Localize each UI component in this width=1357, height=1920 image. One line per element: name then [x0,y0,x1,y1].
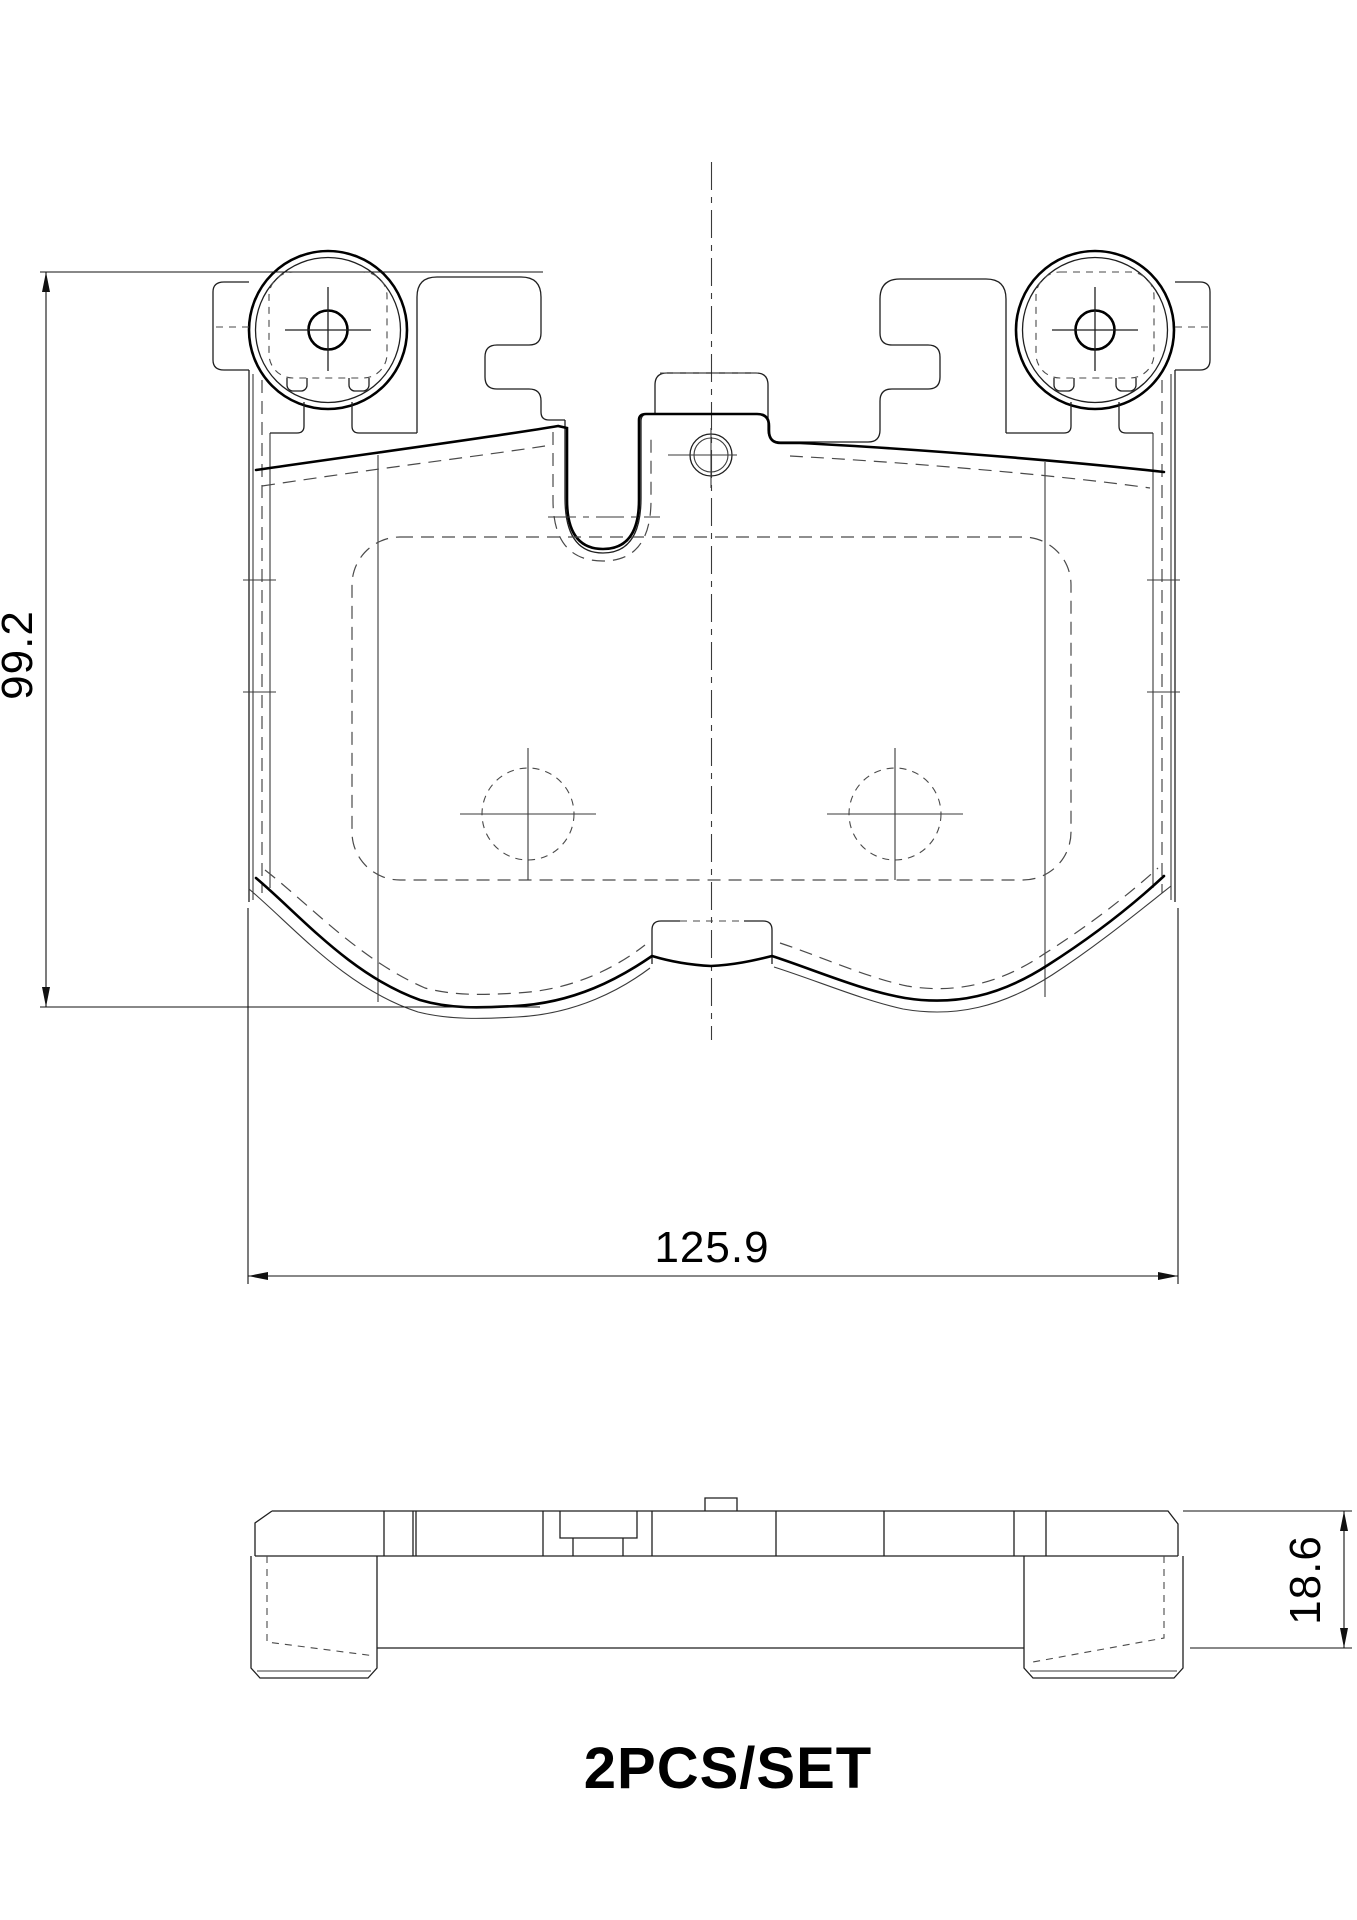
left-center-hole [460,748,596,880]
front-view [213,162,1210,1040]
dimension-thickness: 18.6 [1183,1511,1352,1648]
friction-material-outline [256,414,1164,1007]
thickness-dimension-label: 18.6 [1281,1535,1330,1625]
right-center-hole [827,748,963,880]
height-dimension-label: 99.2 [0,610,42,700]
right-ear-crosshair [1052,287,1138,371]
top-center-pin-hole [668,428,737,488]
dimension-height: 99.2 [0,272,543,1007]
side-view-top-tab [705,1498,737,1511]
left-friction-block [251,1556,377,1678]
right-friction-block [1024,1556,1183,1678]
width-dimension-label: 125.9 [654,1223,769,1272]
backing-plate-strip [255,1498,1178,1556]
side-view-center-notch [560,1511,637,1556]
brake-pad-technical-drawing: 99.2 125.9 [0,0,1357,1920]
drawing-sheet: 99.2 125.9 [0,0,1357,1920]
left-ear-guide-circle [249,251,407,433]
side-view [251,1498,1183,1678]
dimension-width: 125.9 [248,908,1178,1284]
left-ear-crosshair [285,287,371,371]
right-ear-guide-circle [1016,251,1174,433]
hidden-chamfer-lines [262,432,1158,994]
set-quantity-caption: 2PCS/SET [584,1736,872,1801]
